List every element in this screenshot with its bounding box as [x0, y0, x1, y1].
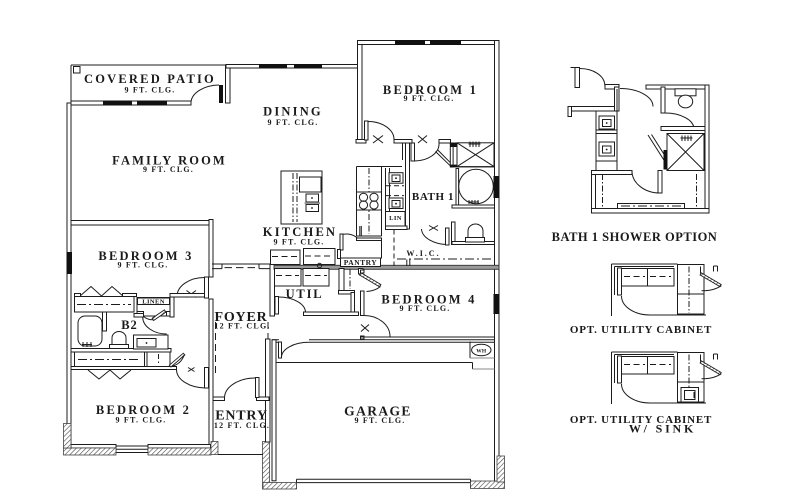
svg-text:9 FT. CLG.: 9 FT. CLG. [118, 261, 169, 270]
svg-text:W.I.C.: W.I.C. [406, 249, 440, 258]
svg-text:9 FT. CLG.: 9 FT. CLG. [125, 86, 176, 95]
svg-text:DINING: DINING [263, 105, 323, 119]
svg-text:9 FT. CLG.: 9 FT. CLG. [116, 416, 167, 425]
svg-text:PANTRY: PANTRY [344, 258, 378, 267]
svg-text:LINEN: LINEN [142, 299, 165, 306]
svg-text:OPT. UTILITY CABINET: OPT. UTILITY CABINET [570, 324, 712, 336]
svg-text:BATH 1 SHOWER OPTION: BATH 1 SHOWER OPTION [552, 230, 718, 244]
svg-text:9 FT. CLG.: 9 FT. CLG. [274, 238, 325, 247]
svg-text:12 FT. CLG.: 12 FT. CLG. [214, 322, 270, 331]
svg-text:9 FT. CLG.: 9 FT. CLG. [268, 118, 319, 127]
svg-text:12 FT. CLG.: 12 FT. CLG. [214, 421, 270, 430]
svg-text:W/ SINK: W/ SINK [629, 422, 696, 436]
svg-text:WH: WH [476, 348, 487, 354]
svg-text:BATH 1: BATH 1 [412, 191, 454, 203]
svg-text:9 FT. CLG.: 9 FT. CLG. [355, 416, 406, 425]
svg-text:COVERED PATIO: COVERED PATIO [84, 72, 216, 86]
svg-text:B2: B2 [121, 318, 138, 332]
svg-text:9 FT. CLG.: 9 FT. CLG. [404, 94, 455, 103]
svg-text:9 FT. CLG.: 9 FT. CLG. [400, 304, 451, 313]
svg-text:UTIL: UTIL [286, 287, 324, 301]
svg-text:LIN: LIN [389, 215, 402, 222]
svg-text:9 FT. CLG.: 9 FT. CLG. [143, 165, 194, 174]
